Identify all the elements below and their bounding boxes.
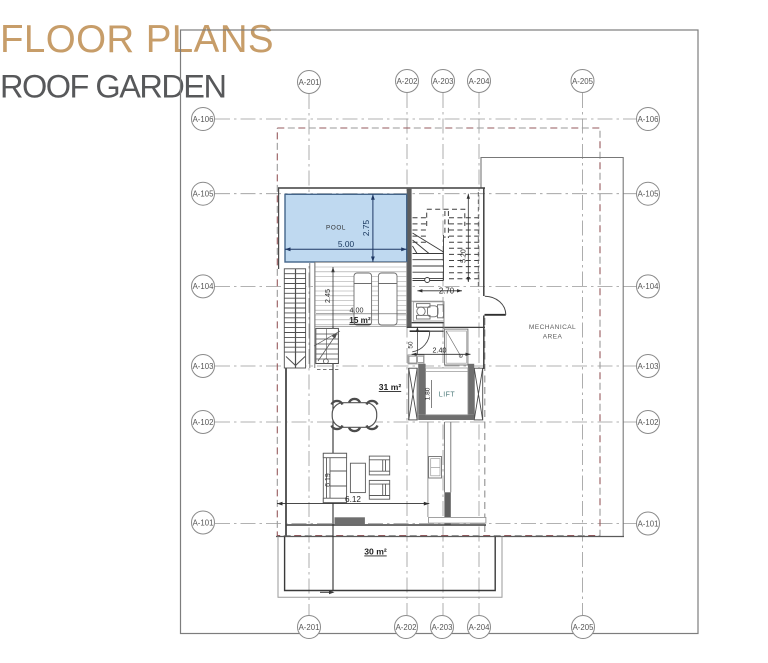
svg-text:FLOOR PLANS: FLOOR PLANS (0, 18, 274, 61)
svg-text:AREA: AREA (543, 334, 563, 341)
svg-text:2.45: 2.45 (323, 289, 332, 303)
svg-text:1.80: 1.80 (425, 387, 432, 400)
svg-text:6.12: 6.12 (345, 495, 361, 504)
svg-text:2.75: 2.75 (361, 220, 371, 237)
svg-text:5.00: 5.00 (338, 239, 355, 249)
svg-text:2.70: 2.70 (439, 286, 455, 295)
svg-text:A-203: A-203 (433, 77, 454, 86)
svg-text:A-203: A-203 (432, 623, 453, 632)
svg-text:A-106: A-106 (638, 115, 659, 124)
svg-text:50: 50 (408, 341, 415, 349)
svg-text:6.19: 6.19 (325, 473, 332, 487)
svg-text:31 m²: 31 m² (379, 382, 402, 392)
svg-text:A-101: A-101 (638, 519, 659, 528)
svg-text:A-102: A-102 (193, 418, 214, 427)
svg-text:A-202: A-202 (396, 623, 417, 632)
svg-text:A-105: A-105 (193, 190, 214, 199)
svg-text:A-201: A-201 (299, 623, 320, 632)
svg-text:30 m²: 30 m² (364, 547, 387, 557)
svg-text:A-106: A-106 (193, 115, 214, 124)
svg-text:5.20: 5.20 (461, 249, 468, 263)
svg-text:A-201: A-201 (299, 78, 320, 87)
svg-text:A-105: A-105 (638, 190, 659, 199)
svg-text:A-104: A-104 (638, 282, 659, 291)
svg-text:POOL: POOL (326, 225, 346, 232)
svg-text:A-101: A-101 (193, 518, 214, 527)
svg-text:A-103: A-103 (638, 362, 659, 371)
svg-text:15 m²: 15 m² (349, 316, 371, 325)
svg-text:A-205: A-205 (573, 623, 594, 632)
svg-text:A-104: A-104 (193, 282, 214, 291)
svg-text:ROOF GARDEN: ROOF GARDEN (0, 69, 225, 105)
svg-text:A-205: A-205 (572, 77, 593, 86)
svg-text:A-204: A-204 (469, 77, 490, 86)
svg-text:A-103: A-103 (193, 362, 214, 371)
svg-text:4.00: 4.00 (350, 306, 364, 315)
svg-text:A-102: A-102 (638, 418, 659, 427)
svg-text:LIFT: LIFT (439, 392, 456, 399)
svg-text:MECHANICAL: MECHANICAL (529, 324, 576, 331)
svg-text:2.40: 2.40 (433, 345, 447, 354)
svg-text:A-202: A-202 (397, 77, 418, 86)
svg-text:A-204: A-204 (469, 623, 490, 632)
